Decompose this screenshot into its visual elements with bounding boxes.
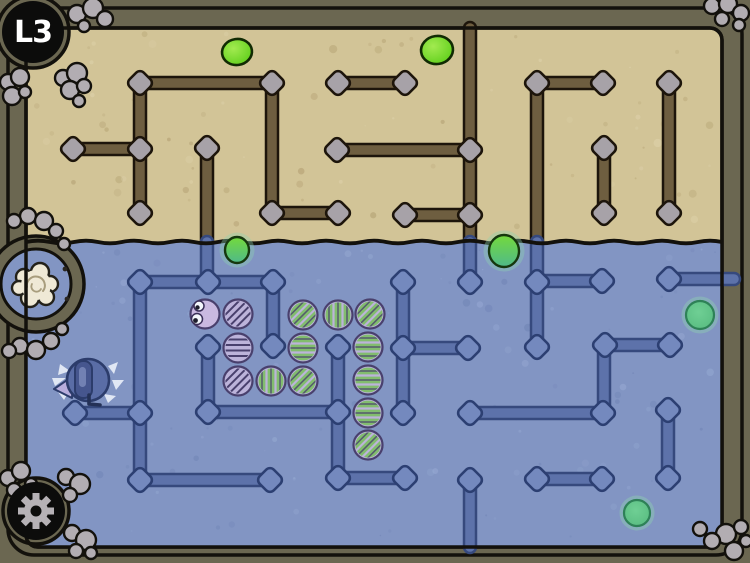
level-badge: L3 <box>2 1 64 63</box>
pod-plain-h <box>224 334 253 363</box>
blob-water <box>620 496 655 531</box>
pod-green-v <box>324 301 353 330</box>
level-badge-label: L3 <box>14 15 52 50</box>
blob-line <box>220 233 255 268</box>
pod-green-d <box>352 429 383 460</box>
alcove <box>0 236 84 332</box>
pod-green-h <box>354 333 383 362</box>
pod-green-h <box>289 334 318 363</box>
pod-green-h <box>354 399 383 428</box>
pod-green-h <box>354 366 383 395</box>
blob-water <box>682 297 719 334</box>
maze-scene <box>0 0 750 563</box>
pod-green-d <box>287 299 318 330</box>
pod-plain-d <box>223 366 253 396</box>
pod-green-d <box>354 298 385 329</box>
game-stage: L3 <box>0 0 750 563</box>
pod-eyes <box>191 300 220 329</box>
settings-button[interactable] <box>7 482 65 540</box>
pod-green-d <box>287 365 318 396</box>
pod-plain-d <box>223 299 253 329</box>
blob-line <box>484 231 525 272</box>
pod-green-v <box>257 367 286 396</box>
gear-icon <box>13 488 59 534</box>
